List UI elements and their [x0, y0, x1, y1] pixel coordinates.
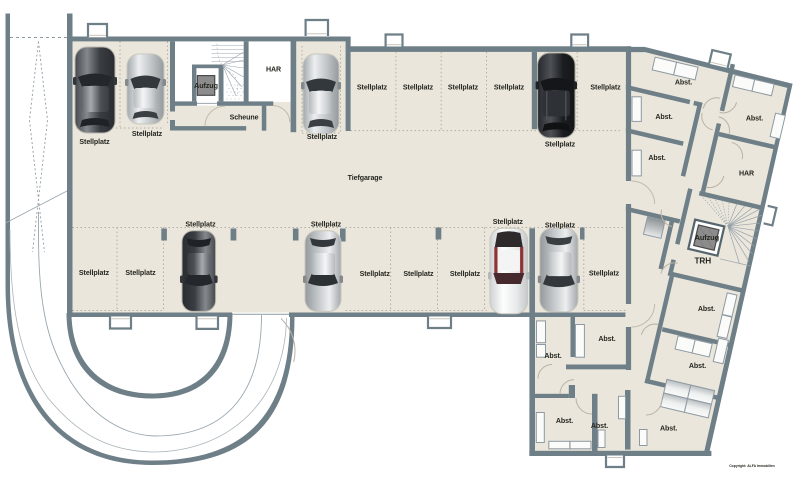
- svg-text:Stellplatz: Stellplatz: [132, 130, 163, 138]
- svg-text:Aufzug: Aufzug: [194, 81, 218, 90]
- svg-text:Abst.: Abst.: [544, 352, 561, 360]
- svg-text:Stellplatz: Stellplatz: [589, 270, 620, 278]
- svg-text:Stellplatz: Stellplatz: [590, 84, 621, 92]
- svg-text:Stellplatz: Stellplatz: [448, 84, 479, 92]
- svg-text:HAR: HAR: [739, 170, 754, 178]
- svg-text:Scheune: Scheune: [230, 114, 259, 122]
- svg-text:Stellplatz: Stellplatz: [545, 222, 576, 230]
- svg-text:Stellplatz: Stellplatz: [185, 221, 216, 229]
- svg-text:Abst.: Abst.: [655, 113, 672, 121]
- svg-text:Stellplatz: Stellplatz: [545, 141, 576, 149]
- svg-text:HAR: HAR: [266, 66, 281, 74]
- svg-text:Abst.: Abst.: [598, 335, 615, 343]
- svg-text:Abst.: Abst.: [591, 422, 608, 430]
- svg-text:Stellplatz: Stellplatz: [79, 269, 110, 277]
- svg-text:Stellplatz: Stellplatz: [357, 84, 388, 92]
- svg-text:Stellplatz: Stellplatz: [307, 133, 338, 141]
- svg-text:Stellplatz: Stellplatz: [493, 218, 524, 226]
- svg-text:Abst.: Abst.: [698, 305, 715, 313]
- svg-text:Stellplatz: Stellplatz: [403, 270, 434, 278]
- svg-text:TRH: TRH: [695, 256, 712, 265]
- svg-text:Stellplatz: Stellplatz: [494, 84, 525, 92]
- svg-text:Tiefgarage: Tiefgarage: [348, 174, 383, 182]
- svg-text:Stellplatz: Stellplatz: [450, 270, 481, 278]
- svg-text:Stellplatz: Stellplatz: [360, 270, 391, 278]
- svg-text:Stellplatz: Stellplatz: [311, 221, 342, 229]
- svg-text:Abst.: Abst.: [675, 79, 692, 87]
- svg-text:Stellplatz: Stellplatz: [403, 84, 434, 92]
- svg-text:Abst.: Abst.: [660, 425, 677, 433]
- svg-text:Abst.: Abst.: [556, 417, 573, 425]
- svg-text:Abst.: Abst.: [689, 362, 706, 370]
- svg-text:Aufzug: Aufzug: [695, 233, 720, 242]
- svg-text:Abst.: Abst.: [648, 154, 665, 162]
- svg-text:Stellplatz: Stellplatz: [125, 269, 156, 277]
- svg-text:Copyright: ALFA Immobilien: Copyright: ALFA Immobilien: [729, 464, 775, 468]
- svg-text:Stellplatz: Stellplatz: [79, 138, 110, 146]
- svg-text:Abst.: Abst.: [746, 115, 763, 123]
